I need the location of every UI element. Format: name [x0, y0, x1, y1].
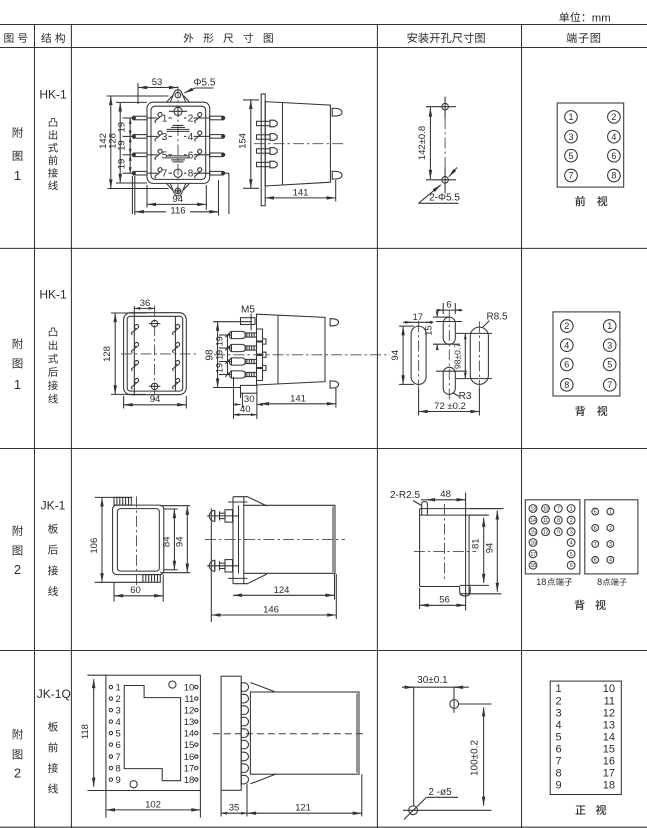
svg-text:5: 5 — [570, 552, 573, 558]
svg-text:4: 4 — [570, 541, 573, 547]
svg-text:98±0.7: 98±0.7 — [452, 343, 462, 369]
svg-text:9: 9 — [557, 530, 560, 536]
svg-text:M5: M5 — [241, 305, 255, 316]
svg-text:18: 18 — [536, 577, 546, 587]
svg-text:1: 1 — [14, 377, 21, 392]
svg-text:2-Φ5.5: 2-Φ5.5 — [429, 193, 460, 204]
svg-text:154: 154 — [237, 133, 248, 149]
svg-text:7: 7 — [556, 756, 562, 768]
svg-text:2: 2 — [570, 518, 573, 524]
svg-text:JK-1: JK-1 — [41, 499, 66, 513]
svg-text:14: 14 — [184, 729, 195, 740]
svg-text:8: 8 — [556, 768, 562, 780]
svg-text:3: 3 — [568, 132, 573, 142]
svg-text:8: 8 — [116, 764, 121, 775]
svg-text:4: 4 — [556, 719, 562, 731]
svg-text:124: 124 — [274, 585, 290, 596]
svg-text:4: 4 — [188, 132, 194, 143]
svg-text:72 ±0.2: 72 ±0.2 — [434, 401, 466, 412]
svg-text:1: 1 — [568, 112, 573, 122]
svg-text:3: 3 — [116, 706, 121, 717]
svg-text:48: 48 — [440, 489, 451, 500]
svg-text:15: 15 — [424, 325, 435, 336]
svg-text:118: 118 — [80, 724, 91, 739]
svg-text:121: 121 — [295, 802, 311, 813]
svg-text:17: 17 — [603, 768, 615, 780]
svg-text:3: 3 — [607, 340, 612, 350]
svg-text:12: 12 — [543, 530, 549, 536]
svg-text:2: 2 — [564, 321, 569, 331]
svg-text:2: 2 — [188, 114, 194, 125]
svg-text:7: 7 — [162, 169, 168, 180]
svg-text:6: 6 — [570, 563, 573, 569]
svg-text:94: 94 — [174, 537, 185, 548]
svg-text:1: 1 — [570, 507, 573, 513]
svg-text:2: 2 — [14, 562, 21, 577]
svg-text:40: 40 — [240, 404, 251, 415]
svg-text:14: 14 — [530, 518, 536, 524]
svg-text:116: 116 — [170, 205, 185, 216]
svg-text:7: 7 — [557, 507, 560, 513]
svg-text:17: 17 — [530, 552, 536, 558]
svg-text:94: 94 — [390, 350, 401, 361]
svg-text:3: 3 — [609, 542, 612, 548]
svg-text:15: 15 — [530, 530, 536, 536]
svg-text:10: 10 — [184, 683, 195, 694]
svg-text:1: 1 — [607, 321, 612, 331]
svg-text:5: 5 — [607, 360, 612, 370]
svg-text:13: 13 — [603, 719, 615, 731]
svg-text:6: 6 — [446, 300, 451, 311]
svg-text:8: 8 — [597, 577, 602, 587]
svg-text:16: 16 — [184, 752, 195, 763]
svg-text:141: 141 — [293, 188, 309, 199]
svg-text:6: 6 — [116, 740, 121, 751]
svg-text:2: 2 — [116, 694, 121, 705]
svg-text:2: 2 — [611, 112, 616, 122]
svg-text:18: 18 — [530, 563, 536, 569]
svg-text:12: 12 — [184, 706, 195, 717]
svg-text:18: 18 — [184, 775, 195, 786]
svg-text:19: 19 — [117, 140, 128, 151]
svg-text:5: 5 — [116, 729, 121, 740]
svg-text:mm: mm — [592, 12, 611, 24]
svg-text:7: 7 — [568, 171, 573, 181]
svg-text:5: 5 — [568, 151, 573, 161]
svg-text:1: 1 — [162, 114, 168, 125]
svg-text:94: 94 — [150, 394, 161, 405]
svg-text:2: 2 — [609, 526, 612, 532]
svg-text:15: 15 — [184, 740, 195, 751]
svg-text:19: 19 — [214, 350, 224, 360]
svg-text:4: 4 — [116, 717, 121, 728]
svg-text:8: 8 — [188, 169, 194, 180]
svg-text:9: 9 — [556, 780, 562, 792]
svg-text:15: 15 — [603, 744, 615, 756]
svg-text:7: 7 — [607, 380, 612, 390]
svg-text:35: 35 — [229, 802, 240, 813]
svg-text:9: 9 — [116, 775, 121, 786]
svg-text:4: 4 — [564, 340, 569, 350]
svg-text:17: 17 — [184, 764, 195, 775]
svg-text:142±0.8: 142±0.8 — [417, 126, 428, 160]
svg-text:5: 5 — [594, 510, 597, 516]
svg-text:1: 1 — [14, 168, 21, 183]
svg-text:14: 14 — [603, 731, 615, 743]
svg-text:2 -ø5: 2 -ø5 — [428, 787, 452, 798]
svg-text:2: 2 — [556, 695, 562, 707]
svg-text:30±0.1: 30±0.1 — [417, 675, 448, 686]
svg-text:128: 128 — [102, 346, 113, 362]
svg-text:8: 8 — [611, 171, 616, 181]
svg-text:8: 8 — [564, 380, 569, 390]
svg-text:100±0.2: 100±0.2 — [470, 740, 481, 777]
svg-text:81: 81 — [471, 538, 482, 549]
svg-text:18: 18 — [603, 780, 615, 792]
svg-text:7: 7 — [594, 542, 597, 548]
svg-text:16: 16 — [530, 541, 536, 547]
svg-text:36: 36 — [140, 298, 151, 309]
svg-text:19: 19 — [117, 159, 128, 170]
svg-text:2: 2 — [14, 766, 21, 781]
svg-text:53: 53 — [152, 77, 163, 88]
svg-text:6: 6 — [594, 526, 597, 532]
svg-text:94: 94 — [172, 194, 183, 205]
svg-text:13: 13 — [184, 717, 195, 728]
svg-text:6: 6 — [611, 151, 616, 161]
svg-text:102: 102 — [145, 799, 161, 810]
svg-text:Φ5.5: Φ5.5 — [194, 78, 216, 89]
svg-text:17: 17 — [413, 312, 424, 323]
svg-text:10: 10 — [543, 507, 549, 513]
svg-text:16: 16 — [603, 756, 615, 768]
svg-text:30: 30 — [244, 394, 255, 405]
svg-text:19: 19 — [117, 122, 128, 133]
svg-text:141: 141 — [290, 393, 306, 404]
svg-text:94: 94 — [484, 543, 495, 554]
svg-text:60: 60 — [130, 585, 141, 596]
svg-text:2-R2.5: 2-R2.5 — [390, 490, 420, 501]
svg-text:11: 11 — [604, 695, 615, 707]
svg-text:4: 4 — [609, 558, 612, 564]
svg-text:1: 1 — [556, 683, 562, 695]
svg-text:1: 1 — [609, 510, 612, 516]
svg-text:19: 19 — [214, 363, 224, 373]
svg-text:3: 3 — [162, 132, 168, 143]
svg-text:19: 19 — [214, 336, 224, 346]
svg-text:84: 84 — [162, 537, 173, 548]
svg-text:1: 1 — [116, 683, 121, 694]
svg-text:3: 3 — [570, 530, 573, 536]
svg-text:56: 56 — [439, 595, 450, 606]
svg-text:11: 11 — [543, 518, 548, 524]
svg-text:10: 10 — [603, 683, 615, 695]
svg-text:8: 8 — [594, 558, 597, 564]
svg-text:12: 12 — [603, 707, 615, 719]
svg-text:13: 13 — [530, 507, 536, 513]
svg-text:6: 6 — [556, 744, 562, 756]
svg-text:4: 4 — [611, 132, 616, 142]
svg-text:8: 8 — [557, 518, 560, 524]
svg-text:5: 5 — [556, 731, 562, 743]
svg-text:6: 6 — [564, 360, 569, 370]
svg-text:7: 7 — [116, 752, 121, 763]
svg-text:11: 11 — [184, 694, 194, 705]
svg-text:146: 146 — [263, 605, 279, 616]
svg-text:HK-1: HK-1 — [39, 288, 67, 302]
svg-text:3: 3 — [556, 707, 562, 719]
svg-text:HK-1: HK-1 — [39, 88, 67, 102]
svg-text:JK-1Q: JK-1Q — [37, 687, 71, 701]
svg-text:106: 106 — [89, 538, 100, 554]
